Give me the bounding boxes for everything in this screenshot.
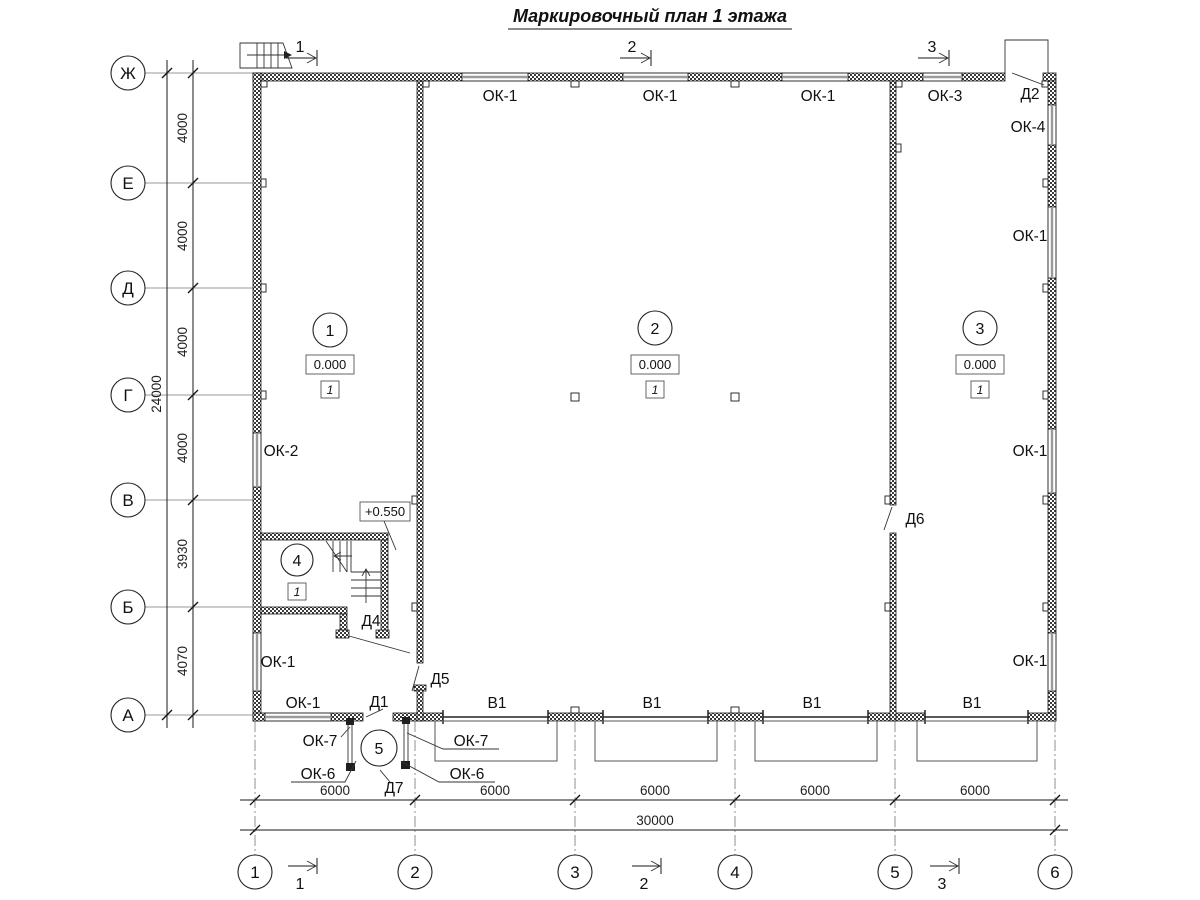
wall-segment <box>253 487 261 633</box>
svg-text:1: 1 <box>296 876 305 893</box>
room-marker-2: 2 0.000 1 <box>631 311 679 398</box>
gate-apron <box>917 721 1037 761</box>
window-ok1-bottom <box>265 713 331 721</box>
svg-text:3: 3 <box>570 863 579 882</box>
floor-type: 1 <box>652 383 659 397</box>
label-door-d7: Д7 <box>384 780 403 797</box>
gate-apron <box>595 721 717 761</box>
dim-col: 6000 <box>800 783 830 798</box>
label-window: ОК-1 <box>483 88 518 105</box>
gate-v1-3 <box>763 710 868 724</box>
label-door-d1: Д1 <box>369 694 388 711</box>
porch-d2 <box>1005 40 1048 85</box>
room-marker-1: 1 0.000 1 <box>306 313 354 398</box>
window-ok1-top-1 <box>462 73 528 81</box>
window-ok1-right-3 <box>1048 633 1056 691</box>
section-mark-bottom-3: 3 <box>930 858 959 893</box>
gate-v1-2 <box>603 710 708 724</box>
plan-canvas: Маркировочный план 1 этажа <box>0 0 1200 900</box>
floor-type: 1 <box>327 383 334 397</box>
axis-row-Д: Д <box>111 271 145 305</box>
window-ok1-top-3 <box>782 73 848 81</box>
dim-row-total: 24000 <box>149 375 164 413</box>
axis-row-А: А <box>111 698 145 732</box>
dim-col: 6000 <box>960 783 990 798</box>
label-window: ОК-1 <box>261 654 296 671</box>
svg-text:6: 6 <box>1050 863 1059 882</box>
svg-text:Ж: Ж <box>120 64 136 83</box>
room-marker-3: 3 0.000 1 <box>956 311 1004 398</box>
label-window: ОК-3 <box>928 88 963 105</box>
drawing-title: Маркировочный план 1 этажа <box>513 6 787 26</box>
axis-row-В: В <box>111 483 145 517</box>
opening-labels: ОК-1 ОК-1 ОК-1 ОК-3 Д2 ОК-4 ОК-1 ОК-1 ОК… <box>261 86 1048 797</box>
axis-row-Г: Г <box>111 378 145 412</box>
window-ok1-top-2 <box>623 73 688 81</box>
left-dimensions: 4000 4000 4000 4000 3930 4070 24000 <box>149 60 198 728</box>
wall-segment <box>548 713 603 721</box>
dim-col-total: 30000 <box>636 813 674 828</box>
dim-col: 6000 <box>640 783 670 798</box>
wall-segment <box>253 73 462 81</box>
room-marker-5: 5 <box>361 730 397 766</box>
axis-col-4: 4 <box>718 855 752 889</box>
svg-text:Д: Д <box>122 279 134 298</box>
label-gate: В1 <box>643 695 662 712</box>
floor-type: 1 <box>294 585 301 599</box>
wall-segment <box>1048 145 1056 207</box>
leader-d4 <box>349 636 410 653</box>
dim-row: 4000 <box>175 221 190 251</box>
wall-segment <box>848 73 923 81</box>
window-ok1-right-1 <box>1048 207 1056 278</box>
svg-text:Г: Г <box>123 386 132 405</box>
svg-text:Б: Б <box>122 598 133 617</box>
gate-apron <box>755 721 877 761</box>
vestibule-cap <box>346 718 354 725</box>
wall-segment <box>1043 73 1056 81</box>
wall-segment <box>1048 493 1056 633</box>
wall-segment <box>528 73 623 81</box>
svg-text:3: 3 <box>938 876 947 893</box>
label-door-d6: Д6 <box>905 511 924 528</box>
label-window: ОК-1 <box>1013 443 1048 460</box>
stairroom-wall-cap <box>376 630 389 638</box>
dim-row: 4000 <box>175 327 190 357</box>
window-ok3-top <box>923 73 962 81</box>
room-number: 3 <box>976 321 985 338</box>
svg-text:В: В <box>122 491 133 510</box>
label-door-d4: Д4 <box>361 613 380 630</box>
interior-stair <box>326 541 381 603</box>
label-window-ok6: ОК-6 <box>301 766 336 783</box>
label-door-d2: Д2 <box>1020 86 1039 103</box>
svg-text:1: 1 <box>250 863 259 882</box>
exterior-stair <box>240 43 292 68</box>
label-window: ОК-1 <box>286 695 321 712</box>
label-window: ОК-1 <box>643 88 678 105</box>
section-mark-top-3: 3 <box>918 39 949 66</box>
wall-segment <box>1028 713 1056 721</box>
dim-row: 3930 <box>175 539 190 569</box>
room-level: 0.000 <box>964 357 997 372</box>
stair-break-line <box>326 541 347 572</box>
axis-col-1: 1 <box>238 855 272 889</box>
svg-text:5: 5 <box>890 863 899 882</box>
svg-text:4: 4 <box>730 863 739 882</box>
section-mark-bottom-1: 1 <box>288 858 317 893</box>
label-door-d5: Д5 <box>430 671 449 688</box>
axis-col-5: 5 <box>878 855 912 889</box>
axis-col-3: 3 <box>558 855 592 889</box>
svg-text:2: 2 <box>640 876 649 893</box>
row-axis-circles: Ж Е Д Г В Б А <box>111 56 145 732</box>
label-window-ok7: ОК-7 <box>303 733 338 750</box>
label-window: ОК-2 <box>264 443 299 460</box>
wall-segment <box>1048 81 1056 105</box>
column <box>731 393 739 401</box>
room-level: 0.000 <box>639 357 672 372</box>
axis-row-Ж: Ж <box>111 56 145 90</box>
level-mark: +0.550 <box>360 502 410 521</box>
wall-segment <box>253 73 261 433</box>
wall-segment <box>708 713 763 721</box>
partition-segment <box>890 81 896 505</box>
vestibule-cap <box>346 763 355 771</box>
svg-text:2: 2 <box>628 39 637 56</box>
partition-segment <box>890 533 896 721</box>
axis-row-Е: Е <box>111 166 145 200</box>
room-level: 0.000 <box>314 357 347 372</box>
label-window-ok7: ОК-7 <box>454 733 489 750</box>
svg-text:1: 1 <box>296 39 305 56</box>
door-leaf-d6 <box>884 507 892 530</box>
column <box>571 393 579 401</box>
room4-wall <box>261 607 347 614</box>
room4-wall-cap <box>336 630 349 638</box>
section-mark-top-1: 1 <box>286 39 317 66</box>
room-number: 1 <box>326 323 335 340</box>
partition-segment <box>417 81 423 663</box>
label-gate: В1 <box>488 695 507 712</box>
svg-text:3: 3 <box>928 39 937 56</box>
bottom-dimensions: 6000 6000 6000 6000 6000 30000 <box>240 783 1068 835</box>
label-window: ОК-1 <box>1013 653 1048 670</box>
label-window: ОК-1 <box>801 88 836 105</box>
vestibule-cap <box>402 717 410 724</box>
room-marker-4: 4 1 <box>281 544 313 600</box>
axis-col-6: 6 <box>1038 855 1072 889</box>
wall-segment <box>1048 278 1056 429</box>
svg-text:2: 2 <box>410 863 419 882</box>
gate-v1-1 <box>443 710 548 724</box>
room-number: 5 <box>375 741 384 758</box>
label-window: ОК-4 <box>1011 119 1046 136</box>
axis-col-2: 2 <box>398 855 432 889</box>
svg-text:Е: Е <box>122 174 133 193</box>
dim-col: 6000 <box>480 783 510 798</box>
svg-text:А: А <box>122 706 134 725</box>
stairroom-wall <box>381 540 388 632</box>
window-ok4-right <box>1048 105 1056 145</box>
level-value: +0.550 <box>365 504 405 519</box>
leader-ok7-left <box>341 727 350 737</box>
partition-stub <box>417 690 423 721</box>
door-leaf-d2 <box>1012 73 1044 85</box>
section-mark-top-2: 2 <box>620 39 651 66</box>
wall-segment <box>253 713 265 721</box>
dim-row: 4000 <box>175 433 190 463</box>
floor-plan-drawing: Маркировочный план 1 этажа <box>0 0 1200 900</box>
window-ok1-right-2 <box>1048 429 1056 493</box>
wall-segment <box>962 73 1005 81</box>
label-window-ok6: ОК-6 <box>450 766 485 783</box>
room-number: 4 <box>293 553 302 570</box>
dim-row: 4070 <box>175 646 190 676</box>
dim-col: 6000 <box>320 783 350 798</box>
stairroom-wall <box>261 533 388 540</box>
room4-wall <box>340 614 347 631</box>
window-ok2-left <box>253 433 261 487</box>
gate-v1-4 <box>925 710 1028 724</box>
section-mark-bottom-2: 2 <box>632 858 661 893</box>
label-gate: В1 <box>963 695 982 712</box>
wall-segment <box>688 73 782 81</box>
room-number: 2 <box>651 321 660 338</box>
dim-row: 4000 <box>175 113 190 143</box>
col-axis-circles: 1 2 3 4 5 6 <box>238 855 1072 889</box>
axis-row-Б: Б <box>111 590 145 624</box>
wall-segment <box>868 713 925 721</box>
floor-type: 1 <box>977 383 984 397</box>
label-gate: В1 <box>803 695 822 712</box>
label-window: ОК-1 <box>1013 228 1048 245</box>
section-marks: 1 2 3 1 2 3 <box>286 39 959 893</box>
